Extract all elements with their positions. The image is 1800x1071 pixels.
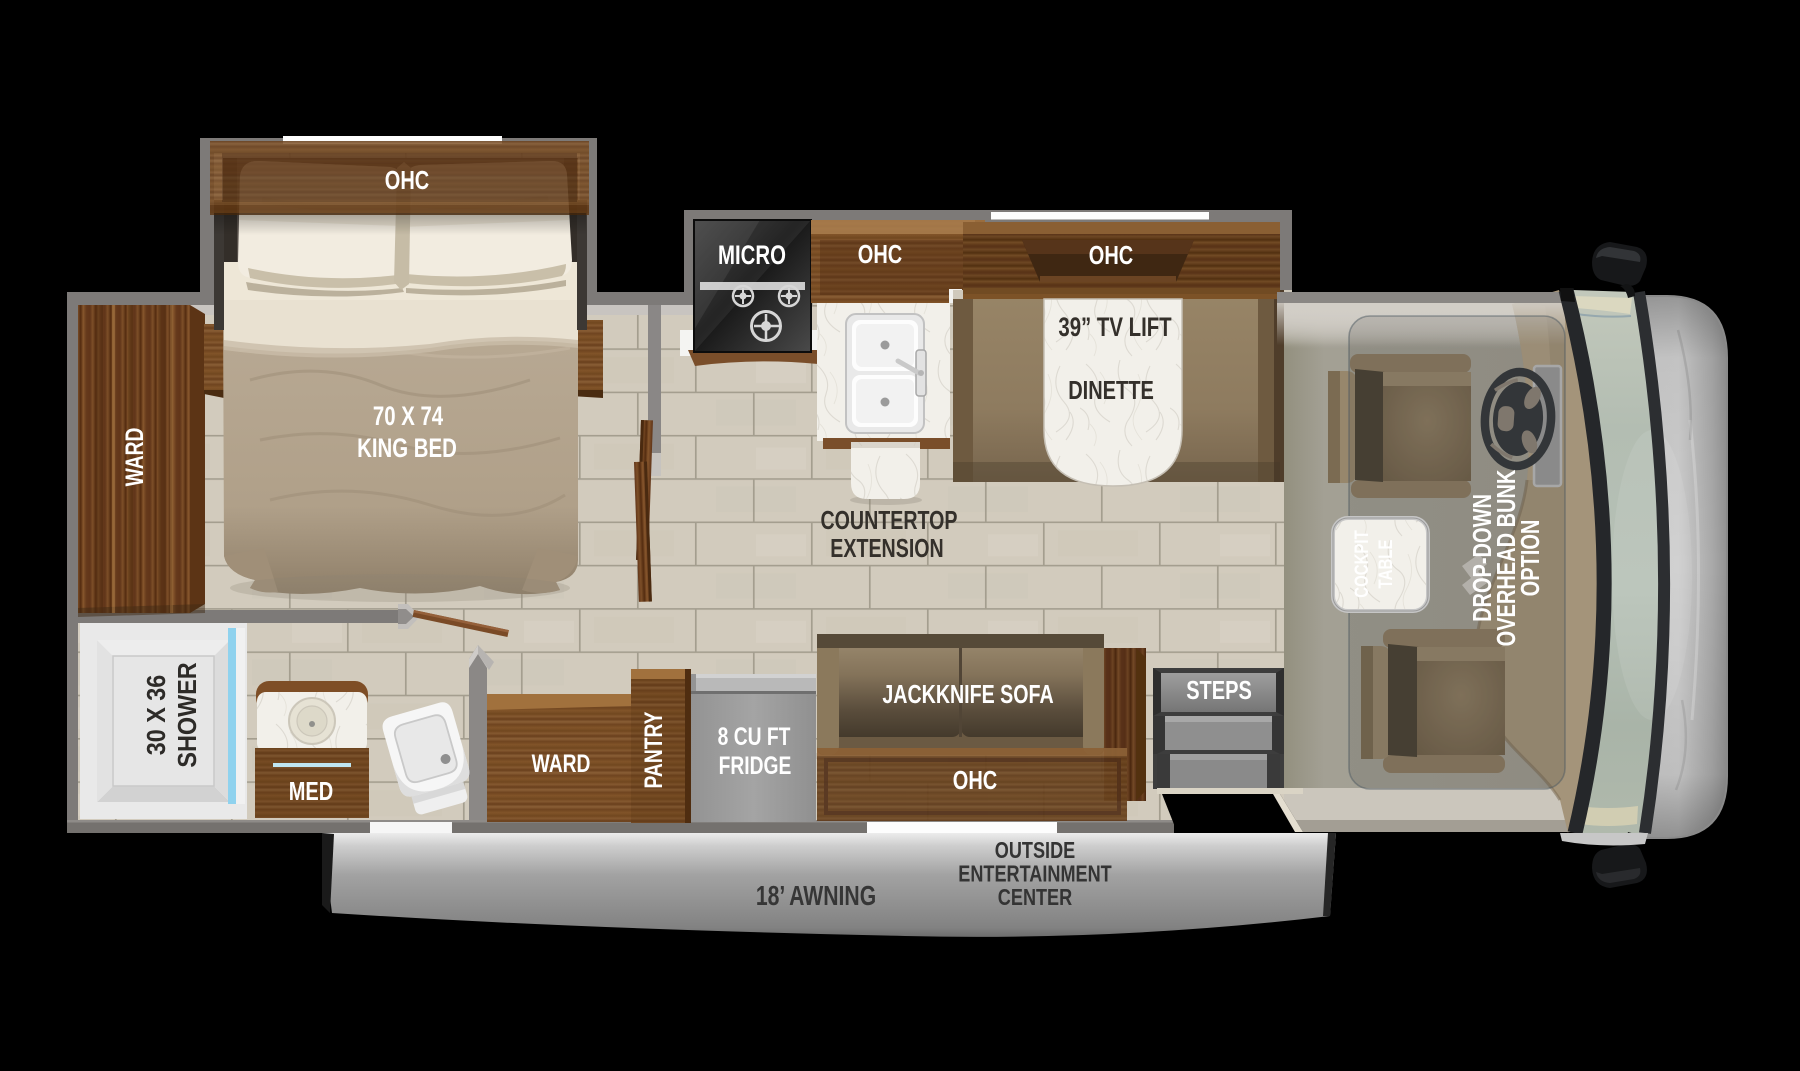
svg-text:39” TV LIFT: 39” TV LIFT <box>1058 314 1172 343</box>
svg-text:MICRO: MICRO <box>718 242 786 271</box>
svg-text:OHC: OHC <box>953 765 998 794</box>
svg-text:JACKKNIFE SOFA: JACKKNIFE SOFA <box>882 679 1053 708</box>
svg-text:TABLE: TABLE <box>1374 540 1396 589</box>
svg-text:70 X 74: 70 X 74 <box>373 403 444 432</box>
svg-text:OPTION: OPTION <box>1515 520 1544 597</box>
svg-text:STEPS: STEPS <box>1186 675 1252 704</box>
svg-text:PANTRY: PANTRY <box>640 711 668 788</box>
svg-text:OUTSIDE: OUTSIDE <box>995 838 1075 864</box>
svg-text:OHC: OHC <box>1089 240 1134 269</box>
svg-text:WARD: WARD <box>121 428 149 487</box>
svg-text:SHOWER: SHOWER <box>174 662 202 767</box>
svg-text:OHC: OHC <box>385 165 430 194</box>
svg-text:COUNTERTOP: COUNTERTOP <box>820 505 957 534</box>
svg-text:DINETTE: DINETTE <box>1068 375 1154 404</box>
svg-text:8 CU FT: 8 CU FT <box>718 723 791 751</box>
svg-text:ENTERTAINMENT: ENTERTAINMENT <box>958 861 1112 887</box>
svg-text:COCKPIT: COCKPIT <box>1350 530 1372 598</box>
svg-text:FRIDGE: FRIDGE <box>719 752 792 780</box>
svg-text:30 X 36: 30 X 36 <box>143 675 171 756</box>
svg-text:MED: MED <box>289 776 333 805</box>
svg-text:WARD: WARD <box>532 750 591 778</box>
svg-text:EXTENSION: EXTENSION <box>830 533 943 562</box>
svg-text:CENTER: CENTER <box>998 885 1072 911</box>
svg-text:18’ AWNING: 18’ AWNING <box>756 881 876 911</box>
svg-text:KING BED: KING BED <box>357 435 457 464</box>
svg-text:OHC: OHC <box>858 239 903 268</box>
